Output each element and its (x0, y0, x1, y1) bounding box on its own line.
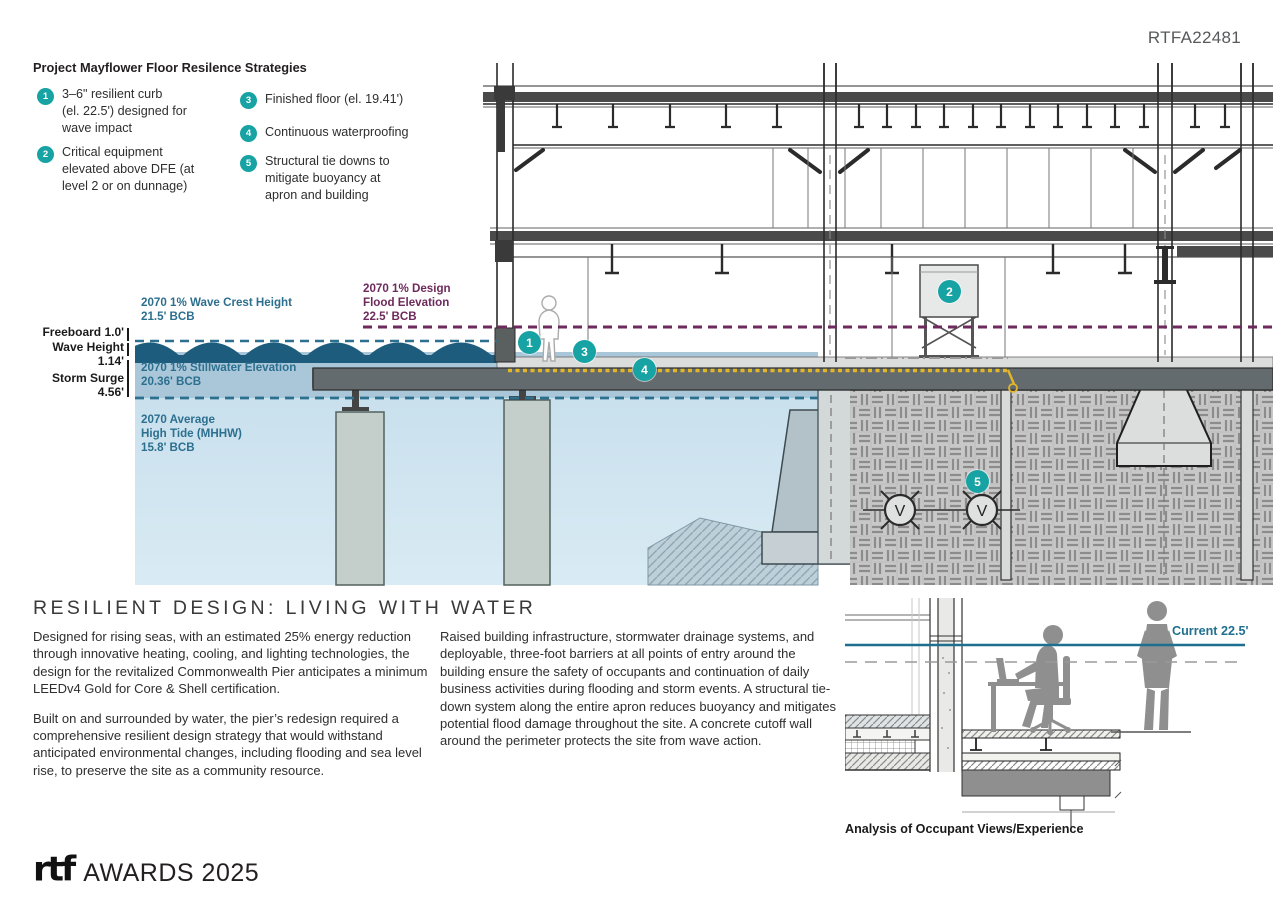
pile-in-fill (1001, 390, 1011, 580)
exterior-floor-assembly (845, 715, 930, 770)
interior-floor-assembly (962, 730, 1121, 830)
label-high-tide: 2070 Average High Tide (MHHW) 15.8' BCB (141, 413, 242, 455)
earth-fill: V V (850, 388, 1273, 585)
drawing-badge-1: 1 (518, 331, 541, 354)
rtf-logo-mark: rtf (33, 851, 73, 889)
legend-badge-1: 1 (37, 88, 54, 105)
presentation-board: RTFA22481 Project Mayflower Floor Resile… (0, 0, 1273, 900)
detail-caption: Analysis of Occupant Views/Experience (845, 822, 1083, 836)
building-structure (483, 63, 1273, 362)
pile-in-fill-right (1241, 390, 1253, 580)
roof-hangers (552, 104, 1230, 127)
knee-braces (516, 150, 1240, 172)
valve-letter: V (977, 503, 988, 520)
current-elevation-label: Current 22.5' (1172, 624, 1249, 638)
label-freeboard: Freeboard 1.0' (24, 325, 124, 339)
drawing-badge-4: 4 (633, 358, 656, 381)
valve-letter: V (895, 503, 906, 520)
label-storm-surge: Storm Surge 4.56' (24, 371, 124, 399)
paragraph: Raised building infrastructure, stormwat… (440, 628, 840, 750)
article-heading: RESILIENT DESIGN: LIVING WITH WATER (33, 597, 536, 620)
article-column-2: Raised building infrastructure, stormwat… (440, 628, 840, 750)
entry-ref-number: RTFA22481 (1148, 28, 1241, 48)
label-design-flood: 2070 1% Design Flood Elevation 22.5' BCB (363, 282, 451, 324)
legend-badge-3: 3 (240, 92, 257, 109)
paragraph: Designed for rising seas, with an estima… (33, 628, 429, 698)
drawing-badge-2: 2 (938, 280, 961, 303)
legend-badge-4: 4 (240, 125, 257, 142)
mullions (773, 148, 1133, 228)
standing-person-figure (1137, 601, 1177, 730)
paragraph: Built on and surrounded by water, the pi… (33, 710, 429, 780)
legend-badge-5: 5 (240, 155, 257, 172)
article-column-1: Designed for rising seas, with an estima… (33, 628, 429, 779)
legend-badge-2: 2 (37, 146, 54, 163)
label-wave-height: Wave Height 1.14' (24, 340, 124, 368)
awards-logo: rtf AWARDS 2025 (33, 850, 259, 890)
seated-person-figure (988, 625, 1071, 735)
critical-equipment (919, 265, 979, 358)
floor-hangers (605, 244, 1132, 273)
label-stillwater: 2070 1% Stillwater Elevation 20.36' BCB (141, 361, 296, 389)
label-wave-crest: 2070 1% Wave Crest Height 21.5' BCB (141, 296, 292, 324)
resilient-curb (495, 328, 515, 362)
drawing-badge-3: 3 (573, 340, 596, 363)
awards-wordmark: AWARDS 2025 (83, 859, 259, 888)
drawing-badge-5: 5 (966, 470, 989, 493)
detail-wall (930, 598, 962, 772)
